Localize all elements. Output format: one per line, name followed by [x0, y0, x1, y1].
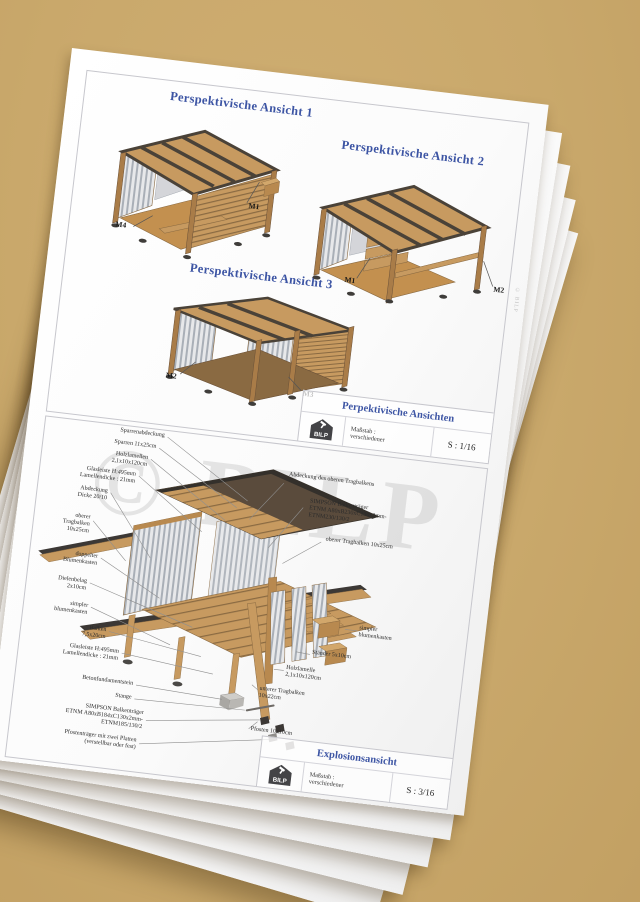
exploded-sheet-number: S : 3/16 [390, 773, 451, 810]
views-sheet-number: S : 1/16 [431, 428, 492, 465]
plan-sheet: © BILP Perspektivische Ansicht 1 Perspek… [0, 48, 549, 816]
scale-value: verschiedener [308, 778, 344, 790]
perspective-views-frame: Perspektivische Ansicht 1 Perspektivisch… [46, 70, 530, 464]
svg-text:BILP: BILP [272, 776, 287, 785]
exploded-view-frame: © BILP [5, 415, 489, 809]
edge-watermark: © BILP [512, 287, 521, 313]
desk-background: © BILP Perspektivische Ansicht 1 Perspek… [0, 0, 640, 902]
bilp-logo-icon: BILP [306, 416, 337, 443]
marker-label-m2-view2: M2 [493, 285, 505, 295]
part-label: oberer Tragbalken 10x25cm [61, 511, 90, 536]
part-label: Balken 7,5x20cm [81, 624, 106, 641]
perspective-view-2-drawing [303, 159, 503, 315]
marker-label-m4: M4 [115, 219, 127, 229]
perspective-view-1-drawing [96, 106, 292, 271]
bilp-logo-icon: BILP [265, 761, 296, 788]
svg-text:BILP: BILP [313, 431, 328, 440]
marker-label-m1-view1: M1 [248, 201, 260, 211]
marker-label-m1-view2: M1 [344, 275, 356, 285]
scale-value: verschiedener [350, 433, 386, 445]
marker-label-m2-view3: M2 [165, 370, 177, 380]
